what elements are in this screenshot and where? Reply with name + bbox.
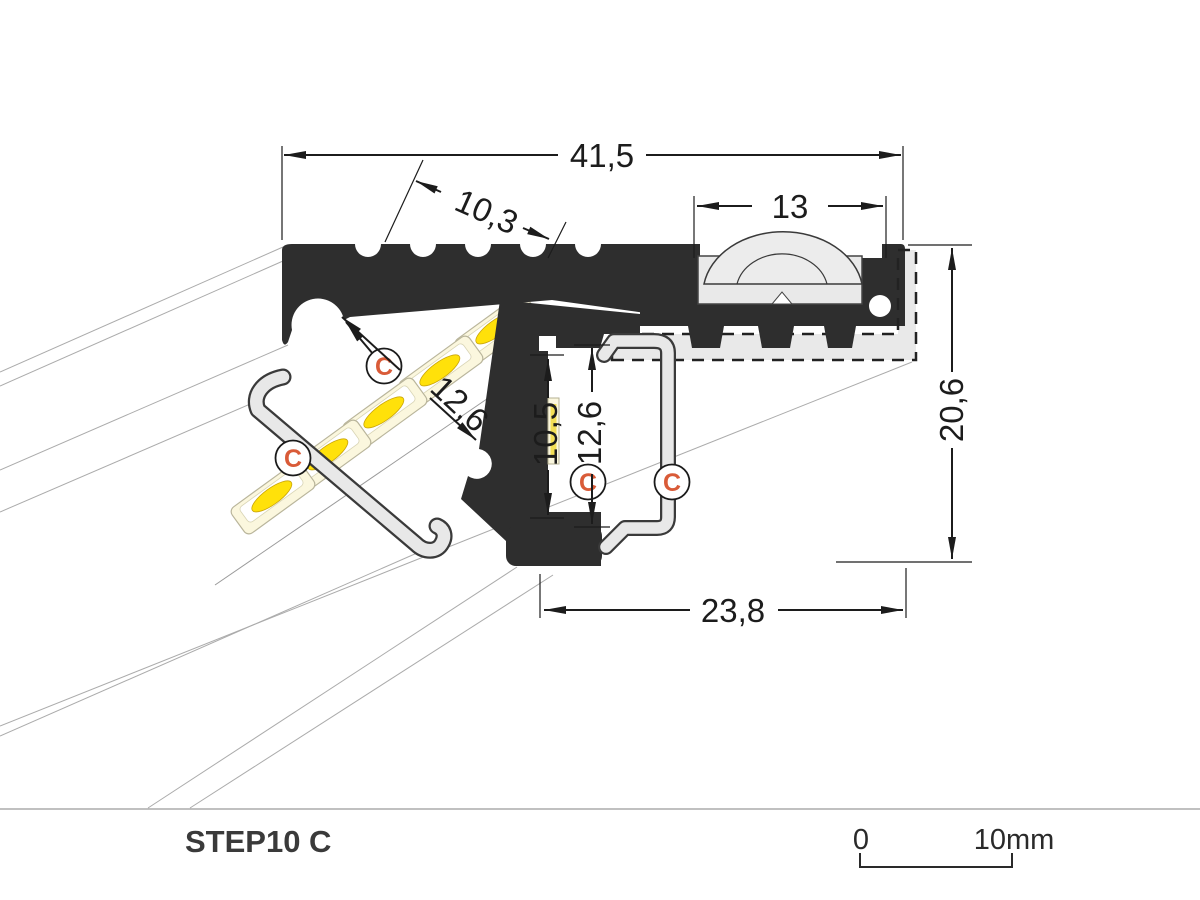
bottom-ribs	[688, 326, 856, 348]
drawing-page: C C C C 41,5 10,3	[0, 0, 1200, 900]
dim-label-cover-height: 12,6	[571, 401, 608, 465]
profile-foot	[506, 526, 602, 566]
dimension-groove-section: 10,3	[385, 160, 566, 258]
dim-label-lens-width: 13	[772, 188, 809, 225]
cover-clip-vertical	[604, 341, 668, 547]
dimension-bottom-width: 23,8	[540, 568, 906, 629]
product-label: STEP10 C	[185, 824, 331, 859]
marker-letter: C	[579, 469, 597, 497]
marker-letter: C	[284, 445, 302, 473]
cover-marker: C	[571, 465, 606, 500]
dim-label-total-width: 41,5	[570, 137, 634, 174]
scale-bar: 0 10mm	[853, 824, 1054, 867]
marker-leader-line	[346, 322, 373, 354]
dim-label-channel-inner-height: 10,5	[527, 402, 564, 466]
cover-marker: C	[276, 441, 311, 476]
dim-label-bottom-width: 23,8	[701, 592, 765, 629]
screw-hole	[869, 295, 891, 317]
scale-end-label: 10mm	[974, 824, 1055, 856]
marker-letter: C	[663, 469, 681, 497]
dim-label-groove-section: 10,3	[450, 182, 524, 242]
technical-drawing: C C C C 41,5 10,3	[0, 0, 1200, 900]
marker-letter: C	[375, 353, 393, 381]
wire-slot	[539, 336, 556, 351]
dim-label-total-height: 20,6	[933, 378, 970, 442]
scale-start-label: 0	[853, 824, 869, 856]
cover-marker: C	[655, 465, 690, 500]
